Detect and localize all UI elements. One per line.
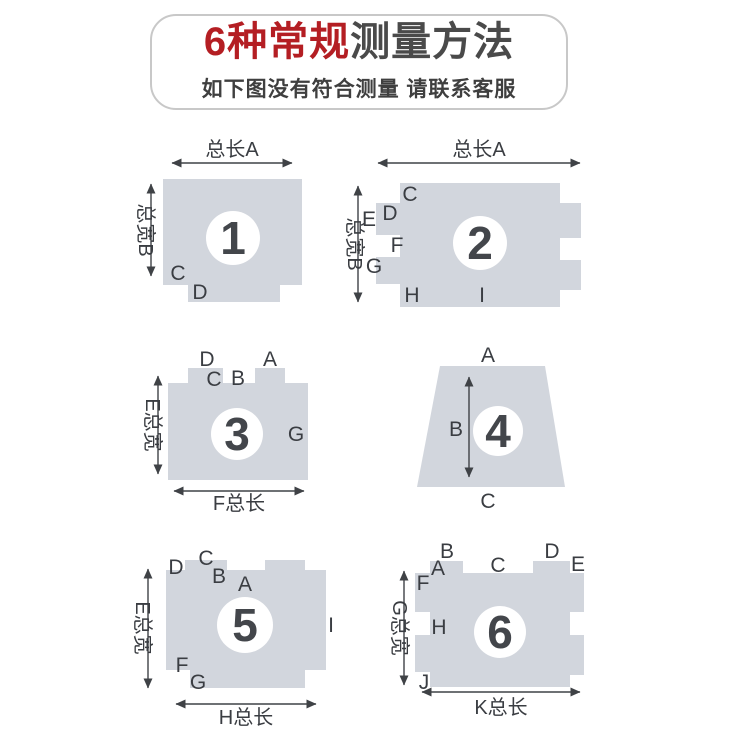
diagram-number: 3: [224, 408, 250, 460]
measure-label: B: [231, 367, 245, 390]
diagram-6: 6 G总宽 K总长 B A F C D E H J: [385, 540, 595, 730]
diagram-1: 1 总长A 总宽B C D: [125, 138, 315, 313]
measure-label: I: [479, 284, 485, 307]
measure-label: F: [391, 234, 404, 257]
page-title: 6种常规测量方法: [204, 22, 514, 62]
dimension-label-left: 总宽B: [134, 203, 157, 256]
measure-label: C: [402, 183, 417, 206]
diagram-number: 6: [487, 606, 513, 658]
measure-label: D: [382, 202, 397, 225]
page-title-red: 6种常规: [204, 20, 350, 64]
dimension-label-bottom: F总长: [213, 492, 265, 515]
measure-label: E: [571, 553, 585, 576]
measurement-guide-infographic: 6种常规测量方法 如下图没有符合测量 请联系客服 1 总长A 总宽B C D 2…: [0, 0, 735, 735]
dimension-label-bottom: K总长: [474, 696, 527, 719]
measure-label: H: [404, 284, 419, 307]
dimension-label-top: 总长A: [205, 138, 259, 161]
measure-label: E: [362, 208, 376, 231]
measure-label: A: [431, 557, 445, 580]
dimension-label-left: E总宽: [141, 398, 164, 451]
dimension-label-left: G总宽: [388, 600, 411, 656]
measure-label: C: [170, 262, 185, 285]
diagram-2: 2 总长A 总宽B C D E F G H I: [340, 138, 595, 313]
measure-label: A: [238, 573, 252, 596]
measure-label: G: [190, 671, 206, 694]
measure-label: G: [288, 423, 304, 446]
measure-label: F: [417, 572, 430, 595]
measure-label: D: [168, 556, 183, 579]
header-banner: 6种常规测量方法 如下图没有符合测量 请联系客服: [150, 14, 568, 110]
measure-label: I: [328, 614, 334, 637]
measure-label: A: [263, 348, 277, 371]
dimension-label-top: 总长A: [452, 138, 506, 161]
dimension-label-bottom: H总长: [219, 706, 273, 729]
measure-label: C: [480, 490, 495, 513]
measure-label: J: [419, 671, 430, 694]
measure-label: H: [431, 616, 446, 639]
diagram-5: 5 E总宽 H总长 D C B A F G I: [125, 548, 340, 730]
diagram-number: 5: [232, 599, 258, 651]
measure-label: F: [176, 654, 189, 677]
measure-label: B: [212, 565, 226, 588]
diagram-number: 4: [485, 405, 511, 457]
measure-label: C: [206, 368, 221, 391]
diagram-number: 2: [467, 217, 493, 269]
measure-label: A: [481, 344, 495, 367]
diagram-4: 4 A B C: [400, 345, 595, 513]
measure-label: B: [449, 418, 463, 441]
dimension-label-left: E总宽: [131, 601, 154, 654]
measure-label: D: [544, 540, 559, 563]
diagram-number: 1: [220, 212, 246, 264]
measure-label: D: [192, 281, 207, 304]
page-title-dark: 测量方法: [350, 20, 514, 64]
page-subtitle: 如下图没有符合测量 请联系客服: [202, 73, 517, 103]
diagram-3: 3 E总宽 F总长 D A C B G: [128, 350, 323, 518]
measure-label: C: [490, 554, 505, 577]
measure-label: G: [366, 255, 382, 278]
